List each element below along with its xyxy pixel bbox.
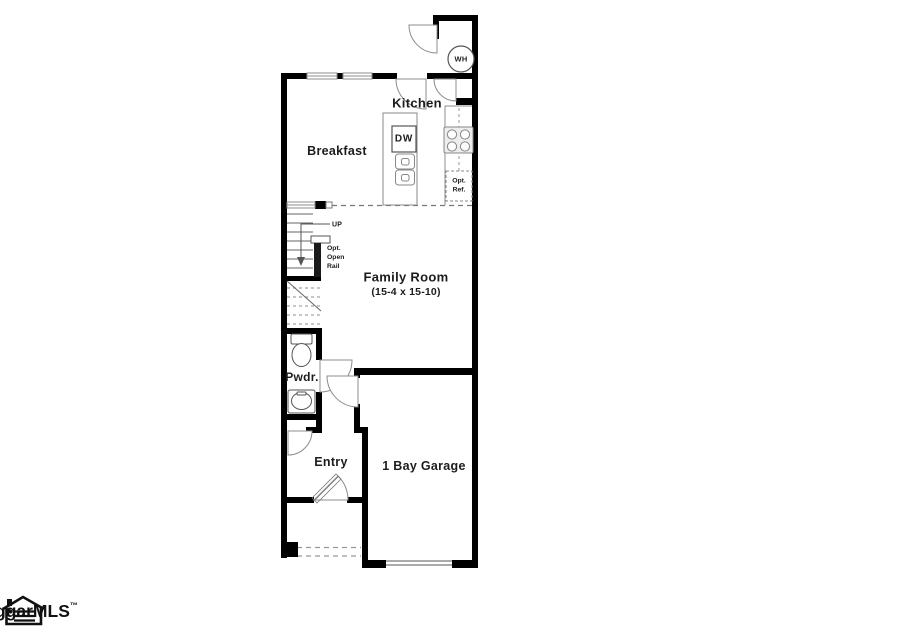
- stair-break-line: [287, 281, 321, 311]
- breakfast-window-left: [307, 73, 337, 79]
- dishwasher-label: DW: [395, 134, 413, 145]
- breakfast-window-right: [343, 73, 372, 79]
- trademark-symbol: ™: [70, 601, 78, 610]
- windows: [287, 73, 372, 208]
- family-room-label: Family Room: [364, 270, 449, 285]
- toilet: [291, 334, 312, 367]
- breakfast-label: Breakfast: [307, 144, 367, 158]
- stairs: [287, 214, 330, 324]
- water-heater-closet-door-swing: [409, 25, 437, 53]
- optional-open-rail-label: Opt. Open Rail: [327, 245, 344, 271]
- mls-logo: ggarMLS ™: [1, 595, 78, 622]
- porch: [283, 542, 361, 557]
- stair-open-rail: [314, 243, 321, 277]
- garage-entry-door-swing: [327, 376, 358, 407]
- floor-plan-drawing: [0, 0, 919, 628]
- powder-sink: [288, 390, 315, 413]
- garage-label: 1 Bay Garage: [382, 459, 466, 473]
- cooktop: [444, 127, 473, 153]
- water-heater-label: WH: [455, 55, 468, 64]
- closet-door-swing: [288, 431, 312, 455]
- up-arrow-head: [297, 257, 305, 266]
- entry-label: Entry: [314, 455, 347, 469]
- porch-post: [283, 542, 298, 557]
- house-icon: [1, 595, 49, 627]
- stairs-up-label: UP: [332, 222, 342, 229]
- stair-rail-cap: [311, 236, 330, 243]
- kitchen-label: Kitchen: [392, 96, 442, 111]
- optional-refrigerator-label: Opt. Ref.: [452, 177, 466, 194]
- powder-room-label: Pwdr.: [285, 370, 319, 384]
- garage-door: [386, 561, 452, 565]
- family-room-dimensions: (15-4 x 15-10): [371, 286, 440, 298]
- floor-plan-page: Kitchen Breakfast Family Room (15-4 x 15…: [0, 0, 919, 628]
